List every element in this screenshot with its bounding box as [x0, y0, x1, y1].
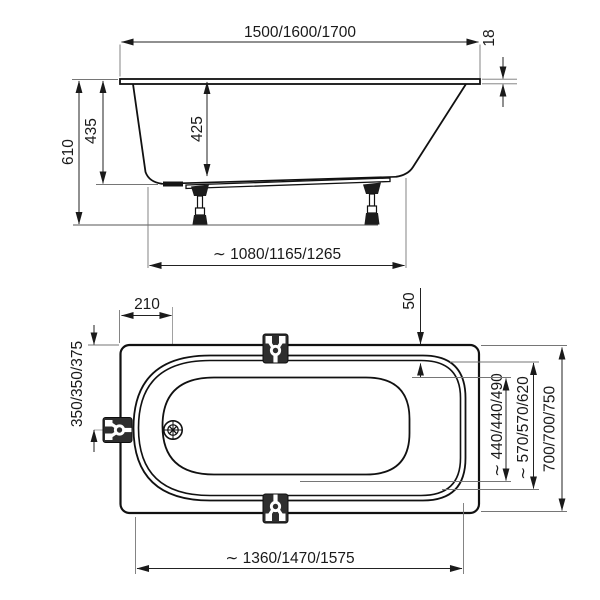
dim-inner-width-label: ∼ 570/570/620 [515, 376, 532, 480]
leg-foot [193, 215, 208, 225]
foot-end-wall [396, 84, 466, 177]
leg-stem [370, 194, 375, 206]
dim-shell-height: 435 [83, 81, 158, 185]
dim-overall-length-label: 1500/1600/1700 [244, 24, 356, 41]
side-view: 1500/1600/1700 18 [60, 24, 517, 268]
leg-nut [196, 208, 205, 215]
dim-total-height: 610 [60, 80, 118, 225]
dim-bottom-width-label: ∼ 440/440/490 [489, 373, 506, 477]
dim-overall-length: 1500/1600/1700 [120, 24, 480, 78]
dim-foot-end-rim-label: 50 [401, 292, 418, 310]
dim-drain-offset-label: 210 [134, 296, 160, 313]
dim-overall-width-label: 700/700/750 [542, 386, 559, 473]
dim-shell-height-label: 435 [83, 118, 100, 144]
dim-rim-thickness-label: 18 [481, 29, 498, 46]
mounting-bracket-left [103, 418, 132, 443]
dim-drain-offset: 210 [120, 296, 172, 343]
drawing-canvas: 1500/1600/1700 18 [0, 0, 600, 600]
dim-base-length-label: ∼ 1080/1165/1265 [213, 246, 341, 263]
plan-view: 210 50 350/350/375 ∼ 440/440/490 ∼ 570/5… [69, 288, 567, 574]
dim-inner-depth: 425 [189, 82, 207, 176]
dim-inner-depth-label: 425 [189, 116, 206, 142]
leg-mount [363, 183, 381, 195]
drain-icon [164, 421, 183, 440]
dim-rim-length-label: ∼ 1360/1470/1575 [225, 550, 354, 567]
bathtub-dimension-drawing: 1500/1600/1700 18 [0, 0, 600, 600]
leg-left [191, 185, 209, 225]
head-end-wall [133, 84, 162, 184]
bathtub-side-outline [120, 79, 480, 189]
dim-drain-to-edge-label: 350/350/375 [69, 341, 86, 427]
leg-foot [365, 213, 380, 225]
leg-stem [198, 196, 203, 208]
leg-right [363, 183, 381, 225]
dim-total-height-label: 610 [60, 139, 77, 165]
drain-fitting [163, 182, 183, 187]
mounting-bracket-top [263, 334, 288, 363]
leg-mount [191, 185, 209, 197]
rim-edge [120, 79, 480, 84]
dim-rim-thickness: 18 [481, 29, 517, 107]
mounting-bracket-bottom [263, 494, 288, 523]
leg-nut [368, 206, 377, 213]
